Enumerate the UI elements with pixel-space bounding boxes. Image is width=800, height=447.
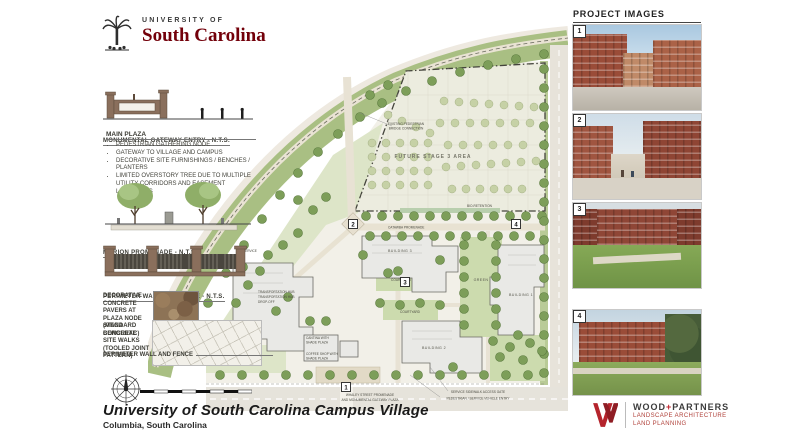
pavers-photo — [153, 291, 199, 321]
brick-building-left — [573, 126, 613, 182]
coffee-label: COFFEE SHOP WITH — [306, 352, 339, 356]
north-arrow-compass — [109, 372, 143, 406]
bioretention-label: BIO-RETENTION — [467, 204, 493, 208]
main-plaza-heading: MAIN PLAZA — [106, 131, 256, 140]
palmetto-tree-icon — [100, 12, 134, 52]
usc-logo: UNIVERSITY OF South Carolina — [100, 10, 310, 54]
firm-tagline: LANDSCAPE ARCHITECTURE LAND PLANNING — [633, 413, 729, 428]
green-label: GREEN — [474, 278, 489, 282]
bridge-label: EXISTING PEDESTRIAN — [388, 122, 425, 126]
firm-name: WOOD+PARTNERS — [633, 402, 729, 412]
svg-text:DROP-OFF: DROP-OFF — [258, 300, 275, 304]
photo-badge-1: 1 — [573, 25, 586, 38]
lawn — [573, 362, 701, 395]
svg-text:TRANSPORTATION HUB: TRANSPORTATION HUB — [258, 295, 294, 299]
plan-marker-2: 2 — [349, 220, 358, 229]
scale-bar — [140, 388, 252, 396]
wall-elevation-icon — [103, 244, 249, 280]
leader-line — [196, 355, 273, 356]
svg-text:BRIDGE CONNECTION: BRIDGE CONNECTION — [389, 127, 424, 131]
future-stage-label: FUTURE STAGE 3 AREA — [394, 154, 471, 160]
photo-badge-2: 2 — [573, 114, 586, 127]
usc-university-of: UNIVERSITY OF — [142, 17, 266, 24]
titleblock: University of South Carolina Campus Vill… — [103, 402, 429, 430]
brick-building-right — [653, 40, 701, 90]
svg-text:SHADE PLAZA: SHADE PLAZA — [306, 341, 329, 345]
project-photo-1: 1 — [573, 25, 701, 110]
plan-marker-1: 1 — [342, 383, 351, 392]
street-ground — [573, 87, 701, 110]
building2-label: BUILDING 2 — [422, 346, 446, 350]
brick-building-center — [623, 53, 655, 87]
svg-text:PEDESTRIAN / SERVICE VEHICLE E: PEDESTRIAN / SERVICE VEHICLE ENTRY — [446, 397, 510, 401]
cantina-label: CANTINA WITH — [306, 336, 330, 340]
plaza-ground — [573, 178, 701, 199]
presentation-board: EXISTING PEDESTRIAN BRIDGE CONNECTION FU… — [0, 0, 800, 447]
gate-label: SERVICE SIDEWALK ACCESS GATE — [451, 390, 505, 394]
hub-label: TRANSPORTATION HUB — [258, 290, 294, 294]
pedestrian — [631, 171, 634, 177]
usc-south-carolina: South Carolina — [142, 25, 266, 47]
catawba-label: CATAWBA PROMENADE — [388, 226, 424, 230]
brick-building — [579, 322, 667, 364]
brick-building-left — [573, 34, 627, 92]
project-location: Columbia, South Carolina — [103, 420, 429, 430]
project-title: University of South Carolina Campus Vill… — [103, 402, 429, 419]
plan-marker-3: 3 — [401, 278, 410, 287]
firm-logo: WOOD+PARTNERS LANDSCAPE ARCHITECTURE LAN… — [592, 402, 729, 428]
courtyard2-label: COURTYARD — [400, 310, 421, 314]
whaley-label: WHALEY STREET PROMENADE — [346, 393, 394, 397]
lawn-path — [573, 368, 701, 374]
pedestrian — [621, 170, 624, 177]
project-photo-4: 4 — [573, 310, 701, 395]
promenade-section-icon — [103, 178, 253, 236]
courtyard-lawn — [573, 245, 701, 288]
photo-badge-4: 4 — [573, 310, 586, 323]
building1-label: BUILDING 1 — [509, 293, 533, 297]
project-photo-3: 3 — [573, 203, 701, 288]
project-photo-2: 2 — [573, 114, 701, 199]
building3-label: BUILDING 3 — [388, 249, 412, 253]
photo-badge-3: 3 — [573, 203, 586, 216]
svg-text:SHADE PLAZA: SHADE PLAZA — [306, 357, 329, 361]
plan-marker-4: 4 — [512, 220, 521, 229]
perimeter-wall-callout: PERIMETER WALL AND FENCE — [103, 352, 273, 360]
wood-partners-w-icon — [592, 402, 618, 428]
project-images-heading: PROJECT IMAGES — [573, 9, 701, 23]
brick-building-right — [643, 121, 701, 182]
gateway-elevation-icon — [103, 86, 253, 124]
